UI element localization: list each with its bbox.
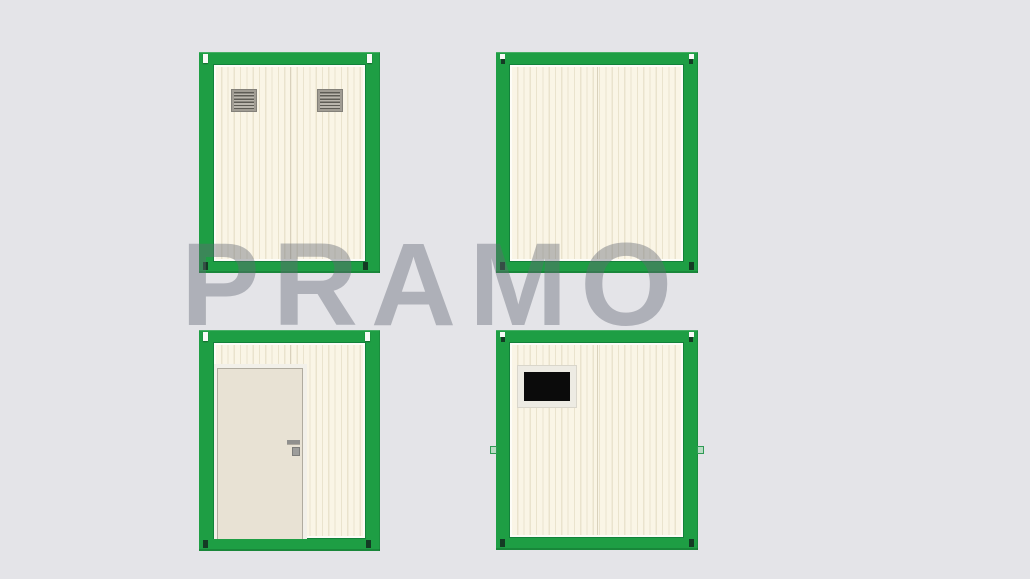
side-tab-icon [697,446,704,454]
door-frame [214,364,307,539]
container-panel-bottom-right [496,330,698,550]
corner-slot-icon [363,262,368,270]
corner-pin-icon [689,59,693,64]
corner-slot-icon [203,540,208,548]
corner-pin-icon [689,337,693,342]
vent-grille-left-icon [232,90,256,111]
wall-seam [597,345,598,535]
window-pane [524,372,570,401]
wall-seam [290,67,291,259]
corner-slot-icon [203,54,208,63]
container-panel-bottom-left [199,330,380,551]
door-handle-icon [287,440,300,444]
corner-slot-icon [367,54,372,63]
door [217,368,303,539]
container-panel-top-right [496,52,698,273]
corner-slot-icon [203,332,208,341]
render-canvas: PRAMO [0,0,1030,579]
corner-slot-icon [365,332,370,341]
wall-ribs [512,67,681,259]
wall-seam [597,67,598,259]
corner-slot-icon [203,262,208,270]
corner-pin-icon [501,59,505,64]
corner-slot-icon [366,540,371,548]
side-tab-icon [490,446,497,454]
panel-opening [509,64,684,262]
corner-slot-icon [689,262,694,270]
window-frame [518,366,576,407]
door-lock-icon [292,447,300,456]
vent-grille-right-icon [318,90,342,111]
corner-pin-icon [501,337,505,342]
corner-slot-icon [689,539,694,547]
corner-slot-icon [500,539,505,547]
container-panel-top-left [199,52,380,273]
corner-slot-icon [500,262,505,270]
